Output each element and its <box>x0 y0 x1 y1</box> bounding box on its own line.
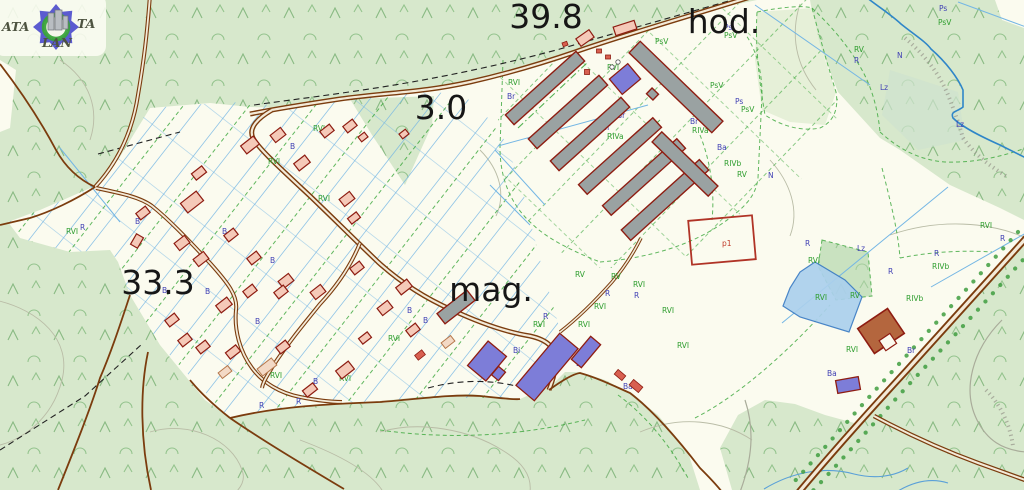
landuse-code-label: R <box>854 56 859 65</box>
landuse-code-label: Ba <box>827 369 837 378</box>
landuse-code-label: RVI <box>677 341 689 350</box>
tank-symbol <box>610 65 614 69</box>
landuse-code-label: Lz <box>880 83 888 92</box>
landuse-code-label: RVI <box>318 194 330 203</box>
landuse-code-label: R <box>296 397 301 406</box>
logo-text-right: TA <box>77 16 96 31</box>
landuse-code-label: R <box>259 401 264 410</box>
landuse-code-label: RIVb <box>932 262 950 271</box>
landuse-code-label: Ps <box>939 4 947 13</box>
datalan-logo-watermark: ATA TA LAN <box>0 0 106 56</box>
landuse-code-label: RIVa <box>607 132 624 141</box>
label-3-0: 3.0 <box>415 88 467 127</box>
landuse-code-label: PsV <box>655 37 669 46</box>
landuse-code-label: RV <box>854 45 865 54</box>
landuse-code-label: RIVb <box>906 294 924 303</box>
landuse-code-label: R <box>805 239 810 248</box>
landuse-code-label: B <box>423 316 428 325</box>
landuse-code-label: Lz <box>956 120 964 129</box>
landuse-code-label: R <box>934 249 939 258</box>
landuse-code-label: PsV <box>710 81 724 90</box>
label-hod: hod. <box>688 2 761 41</box>
landuse-code-label: B <box>270 256 275 265</box>
logo-text-bottom: LAN <box>41 35 72 50</box>
label-mag: mag. <box>449 270 533 309</box>
cadastral-map-canvas[interactable]: RVIBrBrRIVaBrRIVaBaPsVPsVPsPsVPsPsVRIVbR… <box>0 0 1024 490</box>
landuse-code-label: R <box>605 289 610 298</box>
landuse-code-label: p1 <box>722 239 732 248</box>
landuse-code-label: Ba <box>717 143 727 152</box>
landuse-code-label: RV <box>575 270 586 279</box>
landuse-code-label: RVI <box>633 280 645 289</box>
landuse-code-label: RVI <box>508 78 520 87</box>
landuse-code-label: PsV <box>741 105 755 114</box>
landuse-code-label: RVI <box>808 256 820 265</box>
landuse-code-label: Bi <box>513 346 520 355</box>
landuse-code-label: B <box>290 142 295 151</box>
landuse-code-label: RIVb <box>724 159 742 168</box>
landuse-code-label: N <box>897 51 903 60</box>
landuse-code-label: RVI <box>268 157 280 166</box>
landuse-code-label: RV <box>737 170 748 179</box>
landuse-code-label: RVI <box>578 320 590 329</box>
landuse-code-label: R <box>1000 234 1005 243</box>
landuse-code-label: RVI <box>533 320 545 329</box>
landuse-code-label: RVI <box>270 371 282 380</box>
shed-building <box>606 55 611 59</box>
label-39-8: 39.8 <box>509 0 582 36</box>
landuse-code-label: RVI <box>66 227 78 236</box>
landuse-code-label: RVI <box>815 293 827 302</box>
landuse-code-label: R <box>543 312 548 321</box>
landuse-code-label: R <box>634 291 639 300</box>
landuse-code-label: N <box>768 171 774 180</box>
landuse-code-label: Br <box>907 346 916 355</box>
label-33-3: 33.3 <box>121 263 194 302</box>
map-viewport[interactable]: RVIBrBrRIVaBrRIVaBaPsVPsVPsPsVPsPsVRIVbR… <box>0 0 1024 490</box>
landuse-code-label: RVI <box>662 306 674 315</box>
landuse-code-label: R <box>80 223 85 232</box>
landuse-code-label: PsV <box>938 18 952 27</box>
landuse-code-label: RVI <box>846 345 858 354</box>
shed-building <box>585 70 590 75</box>
landuse-code-label: B <box>255 317 260 326</box>
landuse-code-label: B <box>407 306 412 315</box>
landuse-code-label: Lz <box>857 244 865 253</box>
shed-building <box>597 49 602 53</box>
tank-symbol <box>616 60 620 64</box>
landuse-code-label: R <box>888 267 893 276</box>
landuse-code-label: RVI <box>594 302 606 311</box>
landuse-code-label: B <box>205 287 210 296</box>
landuse-code-label: RVI <box>980 221 992 230</box>
landuse-code-label: RV <box>850 291 861 300</box>
landuse-code-label: RVI <box>388 334 400 343</box>
logo-text-left: ATA <box>1 19 30 34</box>
landuse-code-label: Br <box>507 92 516 101</box>
landuse-code-label: RV <box>611 272 622 281</box>
